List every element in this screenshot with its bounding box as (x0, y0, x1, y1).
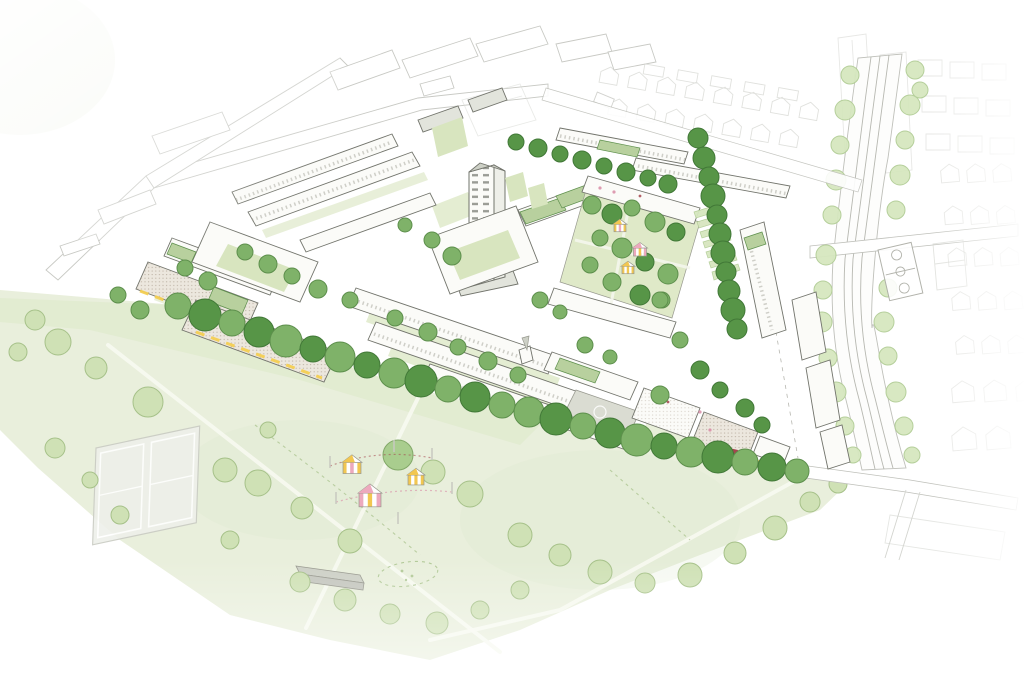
tree (45, 438, 65, 458)
tree (379, 358, 409, 388)
masterplan-illustration: Aerial axonometric masterplan illustrati… (0, 0, 1024, 678)
tree (736, 399, 754, 417)
tree (800, 492, 820, 512)
tree (732, 449, 758, 475)
tree (595, 418, 625, 448)
tree (612, 238, 632, 258)
context-terrace-row (599, 65, 820, 120)
tree (896, 131, 914, 149)
tree (621, 424, 653, 456)
tree (177, 260, 193, 276)
tree (583, 196, 601, 214)
tree (763, 516, 787, 540)
tent-stripe (377, 493, 381, 507)
tree (260, 422, 276, 438)
tree (895, 417, 913, 435)
tree (479, 352, 497, 370)
tent-stripe (363, 493, 367, 507)
tree (435, 376, 461, 402)
tree (603, 350, 617, 364)
tree (540, 403, 572, 435)
tent-stripe (343, 462, 347, 473)
tent-stripe (411, 475, 414, 485)
tree (672, 332, 688, 348)
tree (219, 310, 245, 336)
tree (398, 218, 412, 232)
tent-stripe (634, 248, 637, 256)
tent-stripe (418, 475, 421, 485)
tree (758, 453, 786, 481)
tree (189, 299, 221, 331)
tree (688, 128, 708, 148)
tree (573, 151, 591, 169)
tree (887, 201, 905, 219)
tree (82, 472, 98, 488)
tree (596, 158, 612, 174)
tree (419, 323, 437, 341)
tree (508, 134, 524, 150)
tree (900, 95, 920, 115)
tree (658, 264, 678, 284)
tree (906, 61, 924, 79)
tent-stripe (624, 224, 626, 231)
tree (721, 298, 745, 322)
tree (45, 329, 71, 355)
context-slab (330, 50, 400, 90)
side-street (885, 490, 920, 560)
tent-stripe (641, 248, 644, 256)
tent-stripe (347, 462, 351, 473)
tree (707, 205, 727, 225)
tree (624, 200, 640, 216)
tree (342, 292, 358, 308)
street-bar (792, 292, 826, 360)
tree (630, 285, 650, 305)
tree (701, 184, 725, 208)
tent-stripe (621, 224, 623, 231)
tree (111, 506, 129, 524)
fade-top-left (0, 0, 340, 240)
tent-stripe (359, 493, 363, 507)
tent-stripe (350, 462, 354, 473)
tree (835, 100, 855, 120)
context-terrace-row (643, 64, 798, 101)
tree (904, 447, 920, 463)
tree (617, 163, 635, 181)
tree (603, 273, 621, 291)
tree (831, 136, 849, 154)
tree (450, 339, 466, 355)
tent-stripe (414, 475, 417, 485)
tree (213, 458, 237, 482)
tree (667, 223, 685, 241)
tree (823, 206, 841, 224)
tree (405, 365, 437, 397)
tree (237, 244, 253, 260)
tent-stripe (614, 224, 616, 231)
tree (270, 325, 302, 357)
tree (300, 336, 326, 362)
tent-stripe (624, 266, 626, 273)
tree (912, 82, 928, 98)
tent-stripe (368, 493, 372, 507)
tree (529, 139, 547, 157)
tree (309, 280, 327, 298)
tree (552, 146, 568, 162)
tree (424, 232, 440, 248)
tree (489, 392, 515, 418)
tent-stripe (632, 266, 634, 273)
tree (702, 441, 734, 473)
tree (651, 433, 677, 459)
tree (244, 317, 274, 347)
tree (652, 292, 668, 308)
tree (131, 301, 149, 319)
fade-bottom (0, 560, 1024, 678)
tent-stripe (616, 224, 618, 231)
tree (711, 241, 735, 265)
tree (592, 230, 608, 246)
tree (886, 382, 906, 402)
tree (110, 287, 126, 303)
tree (387, 310, 403, 326)
tree (133, 387, 163, 417)
tent-stripe (408, 475, 411, 485)
tent-stripe (629, 266, 631, 273)
tree (514, 397, 544, 427)
context-slab (556, 34, 612, 62)
tree (165, 293, 191, 319)
tree (85, 357, 107, 379)
tree (510, 367, 526, 383)
tree (245, 470, 271, 496)
street-bar (806, 360, 840, 428)
tree (651, 386, 669, 404)
grass-blotch (180, 420, 420, 540)
tree (640, 170, 656, 186)
church (519, 336, 533, 364)
tree (841, 66, 859, 84)
tree (874, 312, 894, 332)
tree (645, 212, 665, 232)
tree (284, 268, 300, 284)
tree (460, 382, 490, 412)
context-slab (608, 44, 656, 70)
tree (25, 310, 45, 330)
tent-stripe (354, 462, 358, 473)
tree (457, 481, 483, 507)
tree (676, 437, 706, 467)
tree (443, 247, 461, 265)
tree (691, 361, 709, 379)
tree (577, 337, 593, 353)
tent-stripe (619, 224, 621, 231)
tent-stripe (357, 462, 361, 473)
tree (354, 352, 380, 378)
tent-stripe (644, 248, 647, 256)
tree (879, 347, 897, 365)
context-slab (402, 38, 478, 78)
tree (259, 255, 277, 273)
masterplan-svg: Aerial axonometric masterplan illustrati… (0, 0, 1024, 678)
tree (582, 257, 598, 273)
tree (659, 175, 677, 193)
tent-stripe (372, 493, 376, 507)
tree (785, 459, 809, 483)
tree (570, 413, 596, 439)
context-slab (476, 26, 548, 62)
tree (199, 272, 217, 290)
tree (712, 382, 728, 398)
tree (816, 245, 836, 265)
tree (291, 497, 313, 519)
tree (890, 165, 910, 185)
tent-stripe (627, 266, 629, 273)
context-court-block (420, 76, 454, 96)
tree (221, 531, 239, 549)
tree (338, 529, 362, 553)
tree (693, 147, 715, 169)
tree (727, 319, 747, 339)
pale-tower (505, 172, 528, 202)
tent-stripe (639, 248, 642, 256)
tree (508, 523, 532, 547)
tent-stripe (421, 475, 424, 485)
tree (716, 262, 736, 282)
tent-stripe (636, 248, 639, 256)
tree (325, 342, 355, 372)
tree (553, 305, 567, 319)
tree (9, 343, 27, 361)
tree (532, 292, 548, 308)
tent-stripe (622, 266, 624, 273)
tree (383, 440, 413, 470)
tree (421, 460, 445, 484)
tree (754, 417, 770, 433)
